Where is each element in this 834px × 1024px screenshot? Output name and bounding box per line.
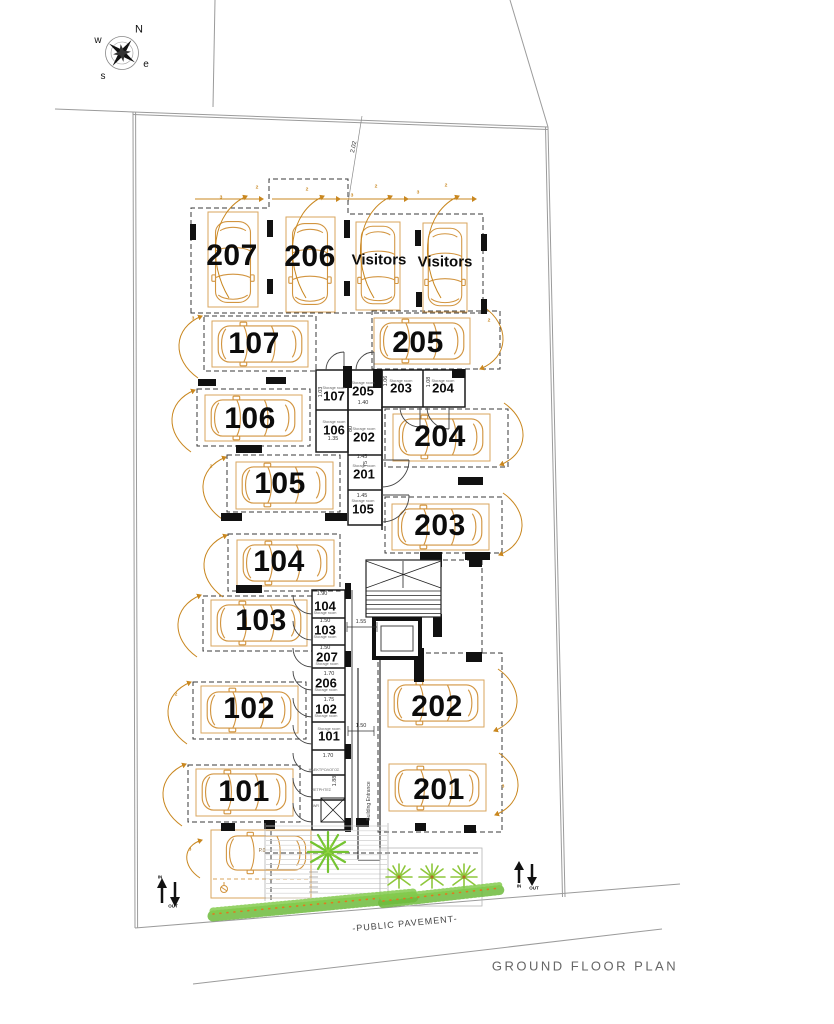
palm-icon [386, 864, 412, 888]
building-entrance-label: Building Entrance [367, 781, 372, 820]
storage-room-caption: Storage room [318, 727, 341, 731]
dimension-label: 1.88 [332, 776, 338, 787]
stairs [366, 560, 441, 617]
storage-room-caption: Storage room [323, 386, 346, 390]
maneuver-mark: 2 [445, 183, 448, 188]
entrance-walkway [265, 823, 388, 903]
storage-room-number: 106 [323, 424, 345, 437]
maneuver-mark: 2 [175, 692, 178, 697]
in-label: IN [158, 875, 163, 880]
hedge [213, 885, 500, 916]
ground-floor-plan: 207 206 Visitors Visitors 107 106 105 10… [0, 0, 834, 1024]
storage-room-caption: Storage room [352, 499, 375, 503]
parking-space-label: Visitors [418, 255, 473, 270]
storage-room-caption: Storage room [323, 420, 346, 424]
compass-south-label: s [101, 72, 106, 82]
dimension-label: 1.70 [323, 753, 334, 759]
maneuver-mark: 3 [192, 316, 195, 321]
storage-room-caption: Storage room [353, 427, 376, 431]
storage-room-caption: Storage room [314, 635, 337, 639]
maneuver-mark: 3 [502, 784, 505, 789]
dimension-label: 1.55 [356, 619, 367, 625]
dimension-label: 1.75 [324, 697, 335, 703]
out-arrow-icon [527, 864, 537, 886]
site-boundary [55, 0, 680, 984]
maneuver-mark: 2 [375, 184, 378, 189]
storage-room-caption: Storage room [352, 381, 375, 385]
compass-east-label: e [143, 60, 149, 70]
storage-room-number: 205 [352, 385, 374, 398]
accessible-icon [221, 882, 228, 893]
storage-room-number: 202 [353, 431, 375, 444]
tree-icon [308, 832, 348, 872]
palm-icon [451, 864, 477, 888]
palm-icon [419, 864, 445, 888]
parking-space-label: 105 [254, 469, 306, 499]
parking-space-label: 201 [413, 775, 465, 805]
in-arrow-icon [157, 878, 167, 903]
dimension-label: 1.03 [318, 387, 324, 398]
parking-space-label: 102 [223, 694, 275, 724]
out-label: OUT [529, 886, 539, 891]
maneuver-mark: 3 [220, 195, 223, 200]
parking-space-label: 203 [414, 511, 466, 541]
dimension-label: 1.50 [320, 618, 331, 624]
utility-room-label: WR [313, 804, 319, 808]
dimension-label: 1.40 [358, 400, 369, 406]
utility-room-label: ΜΕΤΡΗΤΕΣ [311, 788, 331, 792]
storage-room-caption: Storage room [432, 379, 455, 383]
dimension-label: 75 [363, 461, 369, 467]
in-label: IN [517, 884, 522, 889]
storage-room-number: 203 [390, 382, 412, 395]
storage-room-caption: Storage room [314, 611, 337, 615]
storage-room-number: 107 [323, 390, 345, 403]
dimension-label: 80 [348, 426, 354, 432]
parking-space-label: 104 [253, 547, 305, 577]
parking-space-label: Visitors [352, 253, 407, 268]
storage-room-number: 201 [353, 468, 375, 481]
parking-space-label: 202 [411, 692, 463, 722]
compass-north-label: N [135, 25, 143, 36]
parking-space-label: 103 [235, 606, 287, 636]
compass-icon [106, 37, 139, 70]
storage-room-caption: Storage room [316, 662, 339, 666]
parking-space-label: 106 [224, 404, 276, 434]
parking-space-label: 206 [284, 242, 336, 272]
parking-space-label: 101 [218, 777, 270, 807]
in-arrow-icon [514, 861, 524, 883]
dimension-label: 1.90 [317, 591, 328, 597]
parking-space-label: 205 [392, 328, 444, 358]
dimension-label: 1.06 [383, 376, 389, 387]
accessible-space-label: P.0 [259, 849, 266, 854]
maneuver-mark: 3 [189, 847, 192, 852]
maneuver-mark: 3 [417, 190, 420, 195]
parking-space-label: 207 [206, 241, 258, 271]
storage-room-number: 105 [352, 503, 374, 516]
utility-room-label: ΗΛΕΚΤΡΟΛΟΓΟΣ [309, 768, 340, 772]
dimension-label: 1.50 [320, 645, 331, 651]
storage-room-caption: Storage room [390, 379, 413, 383]
compass-west-label: w [94, 36, 101, 46]
dimension-label: 1.35 [328, 436, 339, 442]
maneuver-mark: 2 [256, 185, 259, 190]
elevator [374, 619, 420, 658]
maneuver-mark: 2 [210, 464, 213, 469]
storage-room-number: 101 [318, 730, 340, 743]
dimension-label: 1.50 [356, 723, 367, 729]
parking-space-label: 204 [414, 422, 466, 452]
storage-room-number: 204 [432, 382, 454, 395]
dimension-label: 1.70 [324, 671, 335, 677]
dimension-label: 1.45 [357, 454, 368, 460]
storage-room-caption: Storage room [315, 714, 338, 718]
plan-title: GROUND FLOOR PLAN [492, 960, 678, 973]
dimension-label: 1.08 [426, 377, 432, 388]
maneuver-mark: 2 [306, 187, 309, 192]
storage-room-caption: Storage room [315, 688, 338, 692]
maneuver-mark: 2 [488, 318, 491, 323]
parking-space-label: 107 [228, 329, 280, 359]
dimension-label: 1.45 [357, 493, 368, 499]
out-label: OUT [168, 904, 178, 909]
maneuver-mark: 3 [351, 193, 354, 198]
